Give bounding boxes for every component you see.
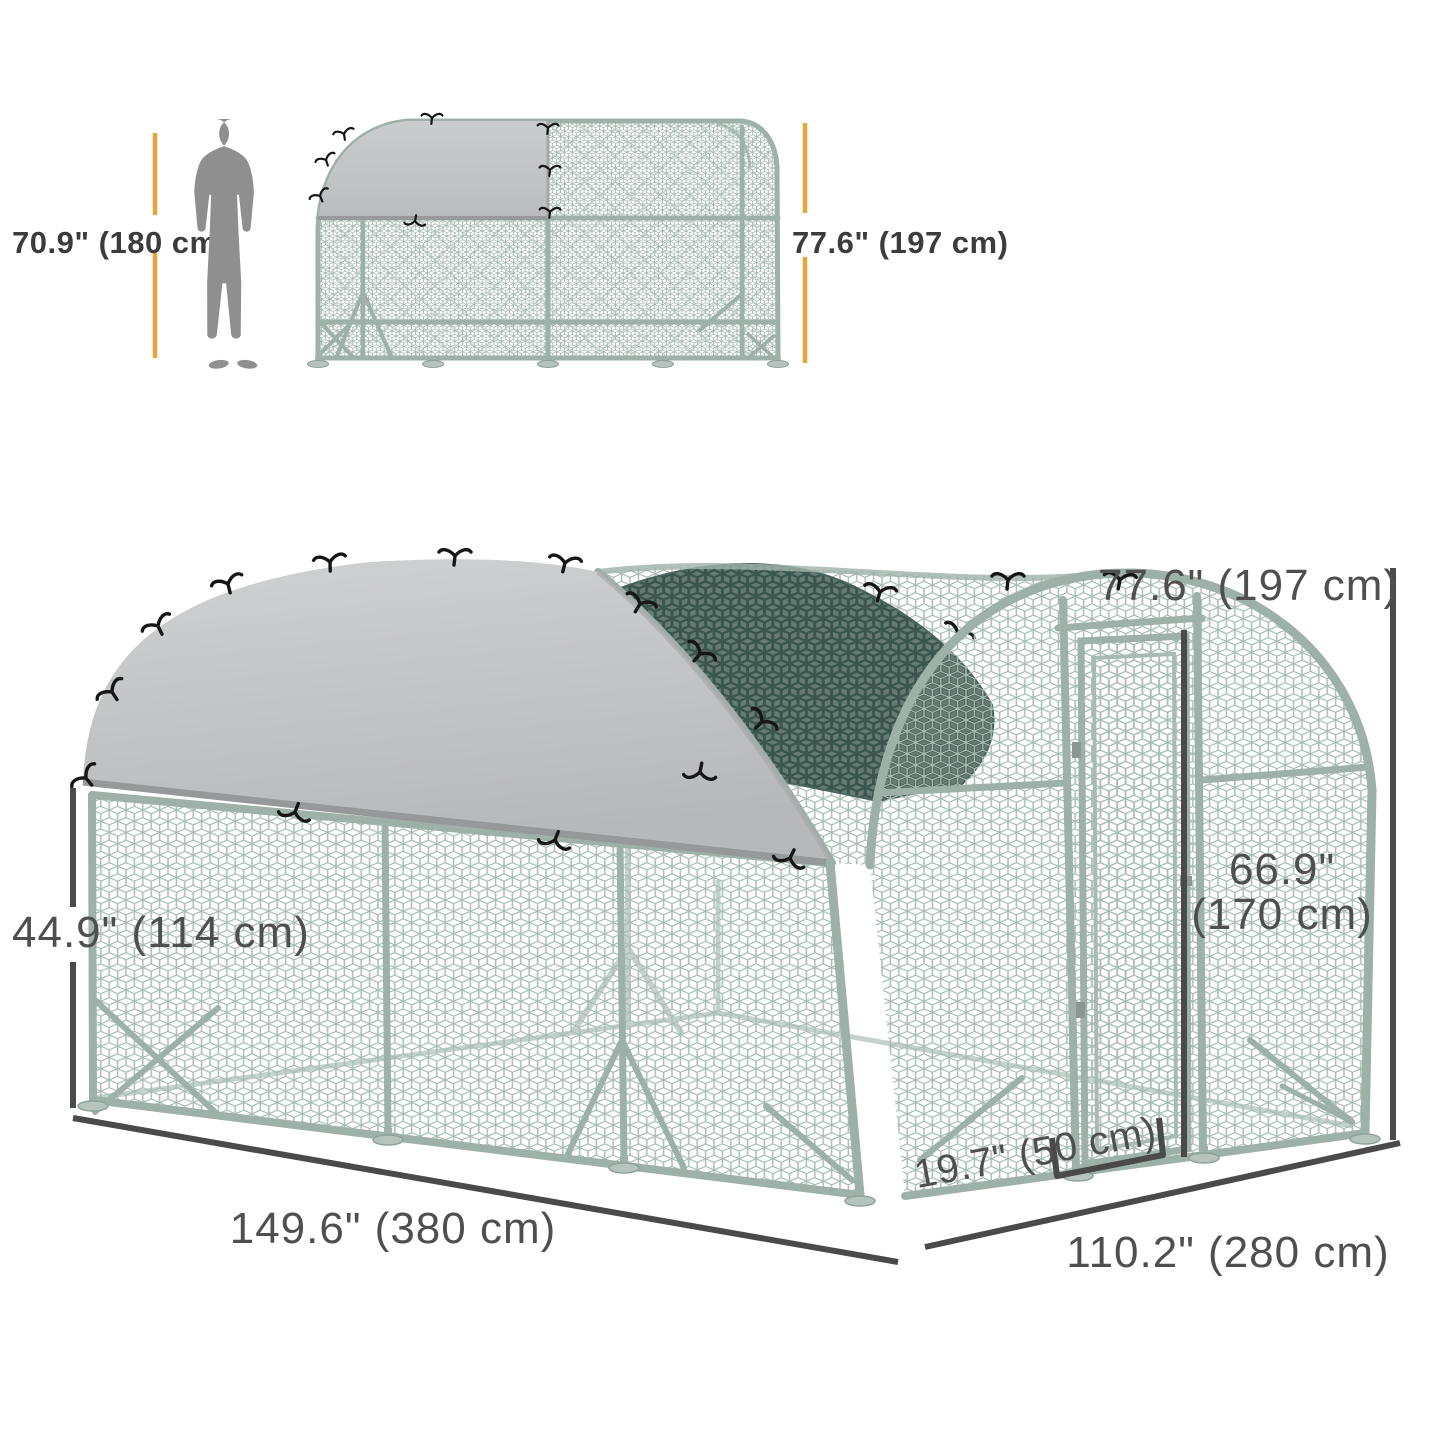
coop-side-view <box>308 114 789 368</box>
length-label: 149.6" (380 cm) <box>230 1204 557 1253</box>
scale-figure: 70.9" (180 cm) 77.6" (197 cm) <box>12 114 1008 370</box>
door <box>1072 636 1192 1164</box>
product-dimension-figure: 70.9" (180 cm) 77.6" (197 cm) <box>0 0 1445 1445</box>
diagram-svg: 70.9" (180 cm) 77.6" (197 cm) <box>0 0 1445 1445</box>
person-height-label: 70.9" (180 cm) <box>12 225 228 260</box>
door-height-label-line2: (170 cm) <box>1191 890 1373 939</box>
door-height-label-line1: 66.9" <box>1229 845 1335 894</box>
coop-height-label: 77.6" (197 cm) <box>792 225 1008 260</box>
total-height-label: 77.6" (197 cm) <box>1098 561 1399 610</box>
wall-height-label: 44.9" (114 cm) <box>12 908 310 957</box>
coop-perspective-view: 77.6" (197 cm) 66.9" (170 cm) 44.9" (114… <box>12 550 1400 1277</box>
depth-label: 110.2" (280 cm) <box>1066 1228 1389 1277</box>
side-view-tarp-cover <box>318 121 548 228</box>
door-hinge-bottom <box>1076 1002 1085 1018</box>
door-hinge-top <box>1072 742 1081 758</box>
